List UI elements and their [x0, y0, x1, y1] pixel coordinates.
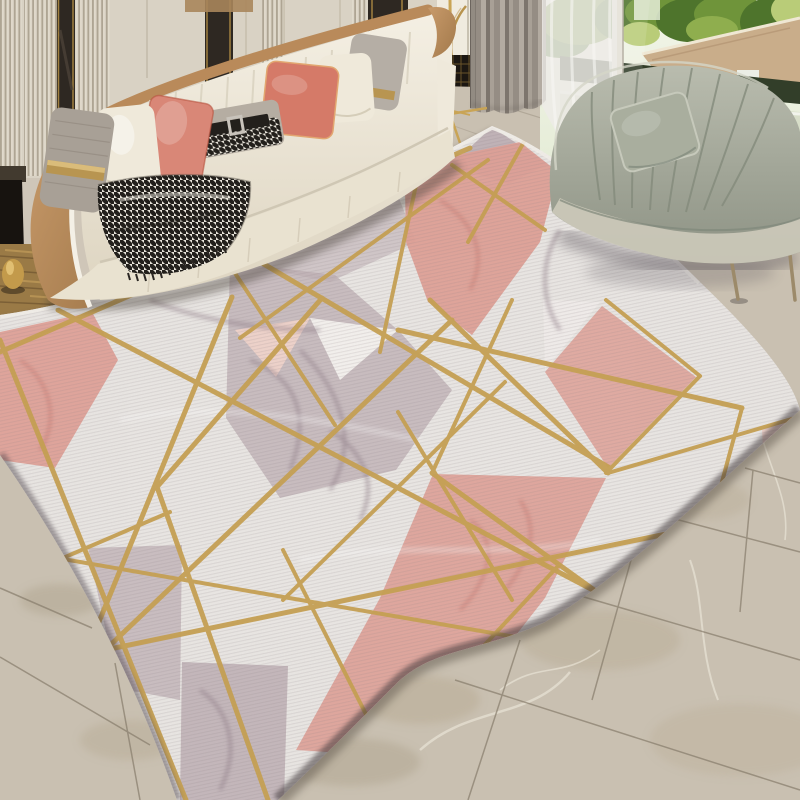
baseboard — [0, 166, 26, 182]
gray-curtains — [470, 0, 546, 114]
living-room-photo — [0, 0, 800, 800]
wall-shadow — [0, 180, 24, 252]
